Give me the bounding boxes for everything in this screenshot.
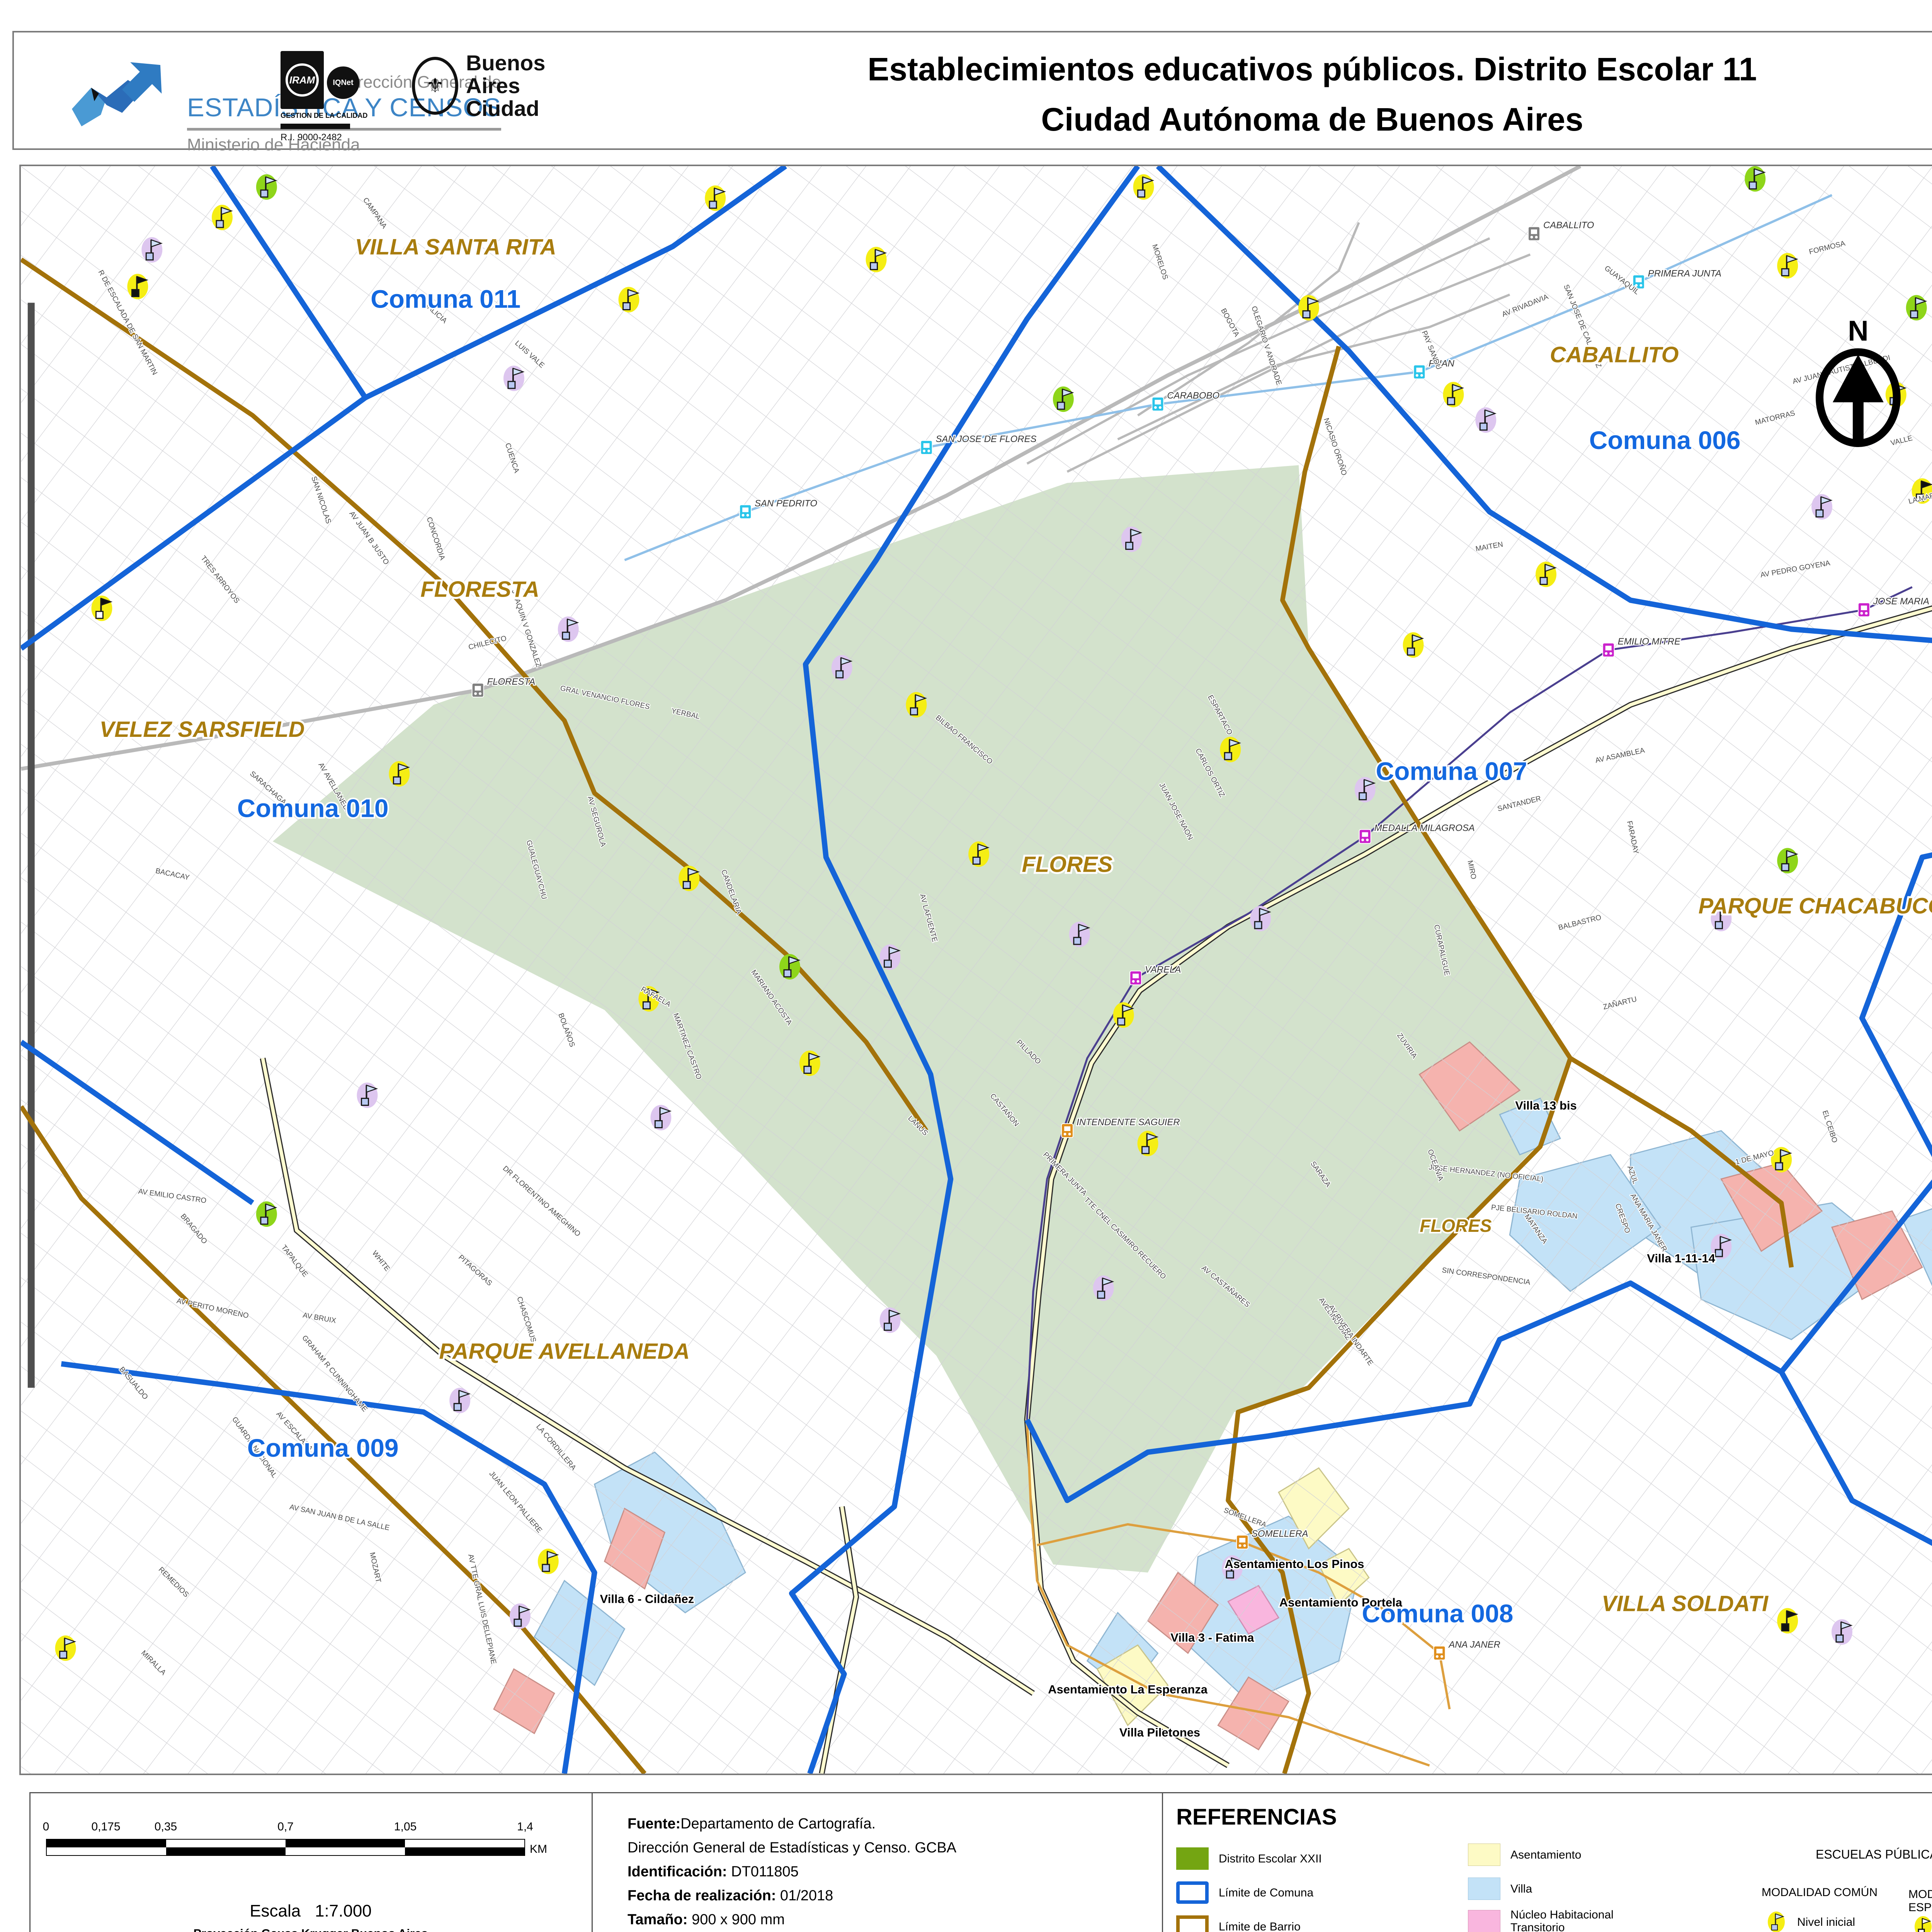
villa-label: Asentamiento La Esperanza: [1048, 1682, 1207, 1696]
school-marker-i: [1220, 737, 1241, 762]
fuente-line2: Dirección General de Estadísticas y Cens…: [628, 1840, 1153, 1855]
header-bar: Dirección General de ESTADÍSTICA Y CENSO…: [12, 31, 1932, 150]
school-marker-s: [1906, 295, 1927, 321]
school-marker-p: [1250, 906, 1271, 931]
school-marker-i: [1133, 174, 1154, 200]
school-marker-i: [799, 1051, 820, 1076]
villa-swatch: [1468, 1878, 1500, 1900]
arrow-logo-icon: [64, 47, 180, 144]
flag-especial-inicial-icon: [1912, 1914, 1932, 1932]
legend-item-barrio: Límite de Barrio: [1176, 1915, 1301, 1932]
title-line1: Establecimientos educativos públicos. Di…: [617, 44, 1932, 94]
villa-label: Villa 1-11-14: [1647, 1252, 1715, 1265]
station-label: SAN JOSE DE FLORES: [936, 434, 1037, 444]
referencias-title: REFERENCIAS: [1176, 1804, 1337, 1830]
iram-caption: GESTION DE LA CALIDAD: [281, 112, 381, 120]
school-marker-i: [1777, 253, 1798, 279]
comuna-swatch: [1176, 1881, 1209, 1904]
school-marker-p: [1355, 777, 1376, 803]
station-label: EMILIO MITRE: [1618, 636, 1681, 647]
villa-label: Villa 3 - Fatima: [1170, 1631, 1254, 1644]
station-label: SOMELLERA: [1252, 1529, 1308, 1539]
school-marker-ep: [127, 274, 148, 299]
flag-inicial-icon: [1765, 1909, 1787, 1932]
barrio-label: VELEZ SARSFIELD: [100, 717, 305, 742]
school-marker-p: [880, 944, 901, 970]
compass-arrow-stem: [1853, 398, 1864, 440]
villa-label: Villa 13 bis: [1515, 1099, 1577, 1112]
barrio-swatch: [1176, 1915, 1209, 1932]
scalebar-tick: 1,4: [517, 1820, 533, 1833]
school-marker-i: [212, 205, 233, 230]
school-marker-s: [1745, 166, 1765, 192]
footer-panel: 0 0,175 0,35 0,7 1,05 1,4 KM Escala 1:7.…: [29, 1792, 1932, 1932]
school-marker-i: [1443, 382, 1464, 407]
compass-north-label: N: [1848, 315, 1868, 347]
comuna-label: Comuna 007: [1376, 757, 1527, 786]
fuente-line4: Fecha de realización: 01/2018: [628, 1888, 1153, 1903]
iqnet-logo-icon: IQNet: [327, 66, 359, 99]
title-line2: Ciudad Autónoma de Buenos Aires: [617, 94, 1932, 145]
escala-line: Escala 1:7.000: [31, 1901, 591, 1921]
comuna-label: Comuna 009: [247, 1434, 399, 1462]
school-marker-p: [1121, 527, 1142, 552]
iram-code: R.I. 9000-2482: [281, 124, 350, 143]
school-marker-i: [538, 1549, 559, 1574]
barrio-label: FLORES: [1420, 1216, 1492, 1236]
comuna-label: Comuna 006: [1589, 426, 1741, 454]
modalidad-especial-title: MODALIDAD ESPECIAL: [1908, 1888, 1932, 1914]
school-marker-i: [1536, 562, 1556, 587]
map-canvas: CABALLITOFLORESTASAN PEDRITOSAN JOSE DE …: [19, 165, 1932, 1775]
nht-swatch: [1468, 1910, 1500, 1932]
fuente-line5: Tamaño: 900 x 900 mm: [628, 1912, 1153, 1927]
legend-especial-inicial: Nivel inicial: [1912, 1914, 1932, 1932]
school-marker-i: [619, 287, 639, 313]
school-marker-i: [1113, 1002, 1134, 1028]
school-marker-i: [1403, 632, 1424, 658]
school-marker-p: [880, 1308, 901, 1333]
scalebar-tick: 1,05: [394, 1820, 417, 1833]
school-marker-i: [866, 247, 887, 272]
scalebar-unit: KM: [530, 1843, 547, 1856]
school-marker-p: [558, 616, 579, 642]
iram-logo-icon: IRAM: [281, 51, 324, 109]
school-marker-i: [705, 185, 726, 211]
station-label: VARELA: [1145, 964, 1181, 975]
villa-label: Asentamiento Portela: [1279, 1596, 1403, 1609]
fuente-line1: Fuente:Departamento de Cartografía.: [628, 1816, 1153, 1831]
scalebar-tick: 0,7: [277, 1820, 294, 1833]
projection-title: Proyección Gauss Krugger Buenos Aires: [31, 1927, 591, 1932]
buenos-aires-logo: ⚜ BuenosAiresCiudad: [412, 52, 545, 120]
school-marker-p: [650, 1105, 671, 1130]
school-marker-p: [1069, 922, 1090, 947]
station-label: SAN PEDRITO: [755, 498, 817, 509]
scale-bar: [46, 1839, 525, 1856]
school-marker-i: [1138, 1131, 1158, 1156]
iram-certification: IRAM IQNet GESTION DE LA CALIDAD R.I. 90…: [281, 51, 381, 143]
comuna-label: Comuna 010: [237, 794, 389, 823]
school-marker-p: [449, 1388, 470, 1413]
school-marker-p: [1093, 1276, 1114, 1301]
escuelas-publicas-title: ESCUELAS PÚBLICAS: [1816, 1847, 1932, 1862]
school-marker-p: [1832, 1619, 1852, 1645]
legend-item-distrito: Distrito Escolar XXII: [1176, 1847, 1322, 1870]
station-label: CABALLITO: [1543, 220, 1594, 231]
station-label: MEDALLA MILAGROSA: [1374, 823, 1475, 833]
school-marker-i: [389, 761, 410, 787]
barrio-label: PARQUE CHACABUCO: [1698, 894, 1932, 918]
scalebar-tick: 0: [43, 1820, 49, 1833]
school-marker-i: [968, 841, 989, 867]
legend-item-comuna: Límite de Comuna: [1176, 1881, 1313, 1904]
villa-label: Asentamiento Los Pinos: [1225, 1557, 1364, 1571]
fuente-line3: Identificación: DT011805: [628, 1864, 1153, 1879]
school-marker-ep: [1777, 1608, 1798, 1634]
school-marker-p: [503, 366, 524, 391]
station-label: JOSE MARIA MORENO: [1873, 596, 1932, 607]
scalebar-tick: 0,35: [155, 1820, 177, 1833]
barrio-label: VILLA SOLDATI: [1602, 1592, 1769, 1616]
school-marker-s: [779, 954, 800, 980]
station-label: PRIMERA JUNTA: [1648, 269, 1721, 279]
villa-label: Villa Piletones: [1119, 1726, 1200, 1739]
school-marker-s: [1777, 848, 1798, 873]
school-marker-s: [256, 1201, 277, 1227]
asentamiento-swatch: [1468, 1844, 1500, 1866]
school-marker-s: [256, 174, 277, 200]
station-label: ANA JANER: [1448, 1639, 1500, 1650]
page-title: Establecimientos educativos públicos. Di…: [617, 44, 1932, 145]
school-marker-p: [141, 237, 162, 263]
barrio-label: PARQUE AVELLANEDA: [439, 1339, 690, 1364]
district-map: CABALLITOFLORESTASAN PEDRITOSAN JOSE DE …: [21, 166, 1932, 1774]
barrio-label: CABALLITO: [1550, 342, 1679, 367]
footer-divider-1: [592, 1793, 593, 1932]
school-marker-i: [679, 866, 699, 891]
station-label: FLORESTA: [487, 677, 536, 687]
scalebar-tick: 0,175: [91, 1820, 120, 1833]
school-marker-p: [1811, 494, 1832, 520]
school-marker-p: [510, 1604, 531, 1629]
street-grid: [21, 166, 1932, 1774]
school-marker-i: [906, 692, 927, 718]
school-marker-i: [55, 1636, 76, 1661]
school-marker-i: [1771, 1147, 1792, 1172]
barrio-label: VILLA SANTA RITA: [355, 235, 556, 260]
villa-label: Villa 6 - Cildañez: [600, 1592, 694, 1606]
barrio-label: FLORES: [1022, 852, 1112, 877]
ba-emblem-icon: ⚜: [412, 57, 458, 115]
school-marker-p: [357, 1083, 378, 1108]
school-marker-s: [1053, 386, 1074, 412]
legend-item-nht: Núcleo Habitacional Transitorio: [1468, 1908, 1684, 1932]
barrio-label: FLORESTA: [420, 577, 539, 602]
footer-divider-2: [1162, 1793, 1163, 1932]
legend-item-villa: Villa: [1468, 1878, 1532, 1900]
legend-item-asentamiento: Asentamiento: [1468, 1844, 1581, 1866]
legend-nivel-inicial: Nivel inicial: [1765, 1909, 1855, 1932]
distrito-swatch: [1176, 1847, 1209, 1870]
station-label: INTENDENTE SAGUIER: [1077, 1117, 1180, 1128]
school-marker-p: [832, 655, 852, 680]
school-marker-ei: [91, 595, 112, 621]
ba-logo-text: BuenosAiresCiudad: [466, 52, 545, 120]
modalidad-comun-title: MODALIDAD COMÚN: [1762, 1886, 1878, 1899]
comuna-label: Comuna 011: [371, 284, 520, 313]
school-marker-p: [1475, 407, 1496, 433]
station-label: CARABOBO: [1167, 391, 1219, 401]
school-marker-i: [1298, 295, 1319, 321]
